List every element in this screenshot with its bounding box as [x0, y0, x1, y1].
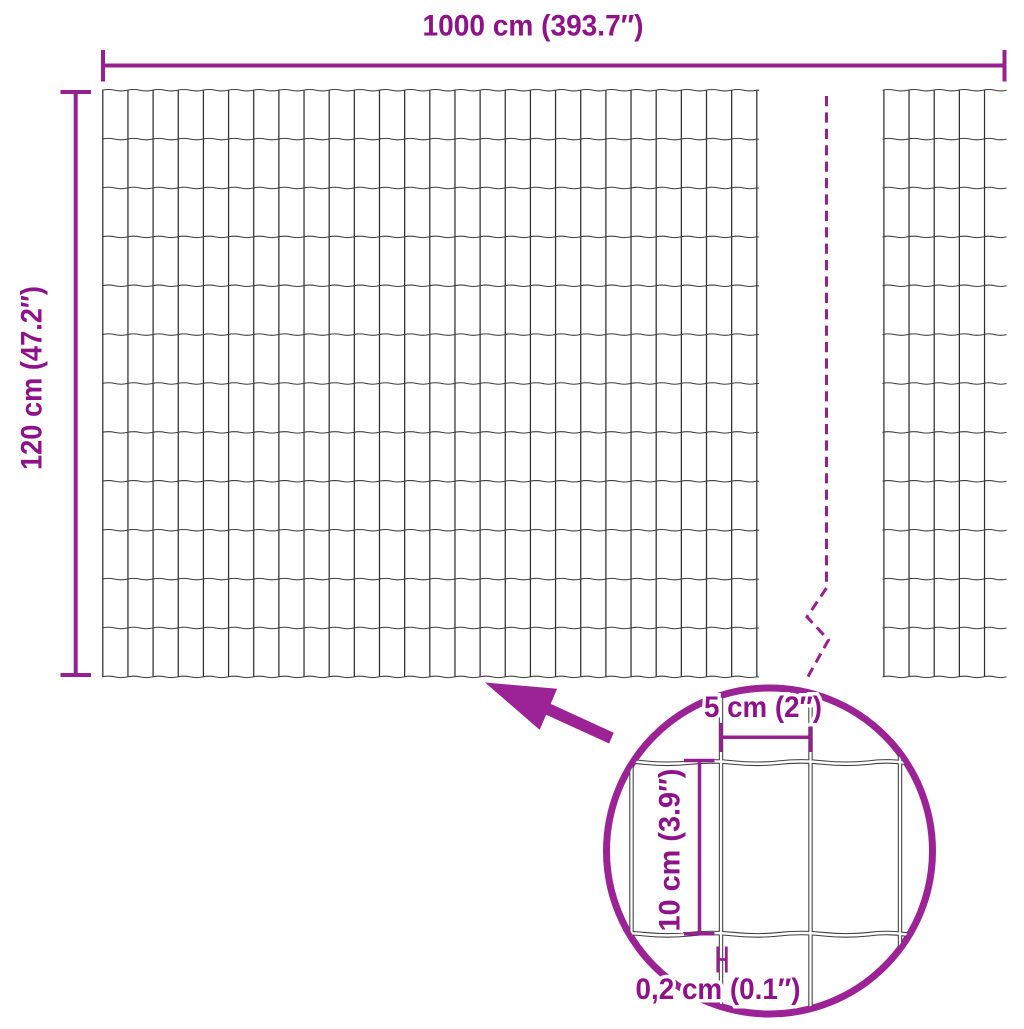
svg-text:5 cm (2″): 5 cm (2″) [704, 691, 822, 724]
svg-text:10 cm (3.9″): 10 cm (3.9″) [654, 769, 687, 932]
svg-text:0,2 cm (0.1″): 0,2 cm (0.1″) [636, 973, 801, 1006]
svg-text:120 cm (47.2″): 120 cm (47.2″) [16, 286, 49, 470]
svg-text:1000 cm (393.7″): 1000 cm (393.7″) [423, 10, 644, 43]
